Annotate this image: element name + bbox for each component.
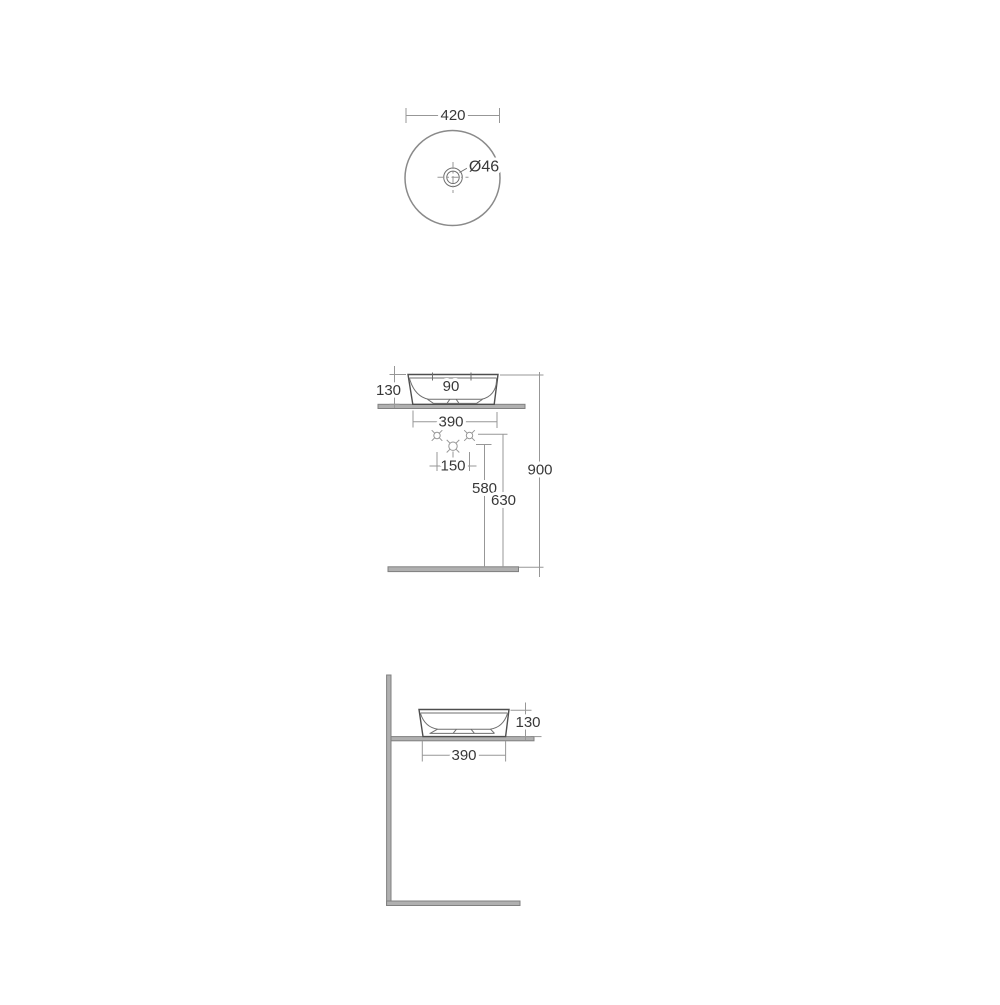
dim-label-basin-height-side: 130	[515, 714, 540, 731]
hole-cross-ticks	[432, 430, 443, 441]
dim-label-basin-height: 130	[376, 382, 401, 399]
dim-overall-width: 420	[406, 107, 500, 124]
hole-circle	[466, 432, 472, 438]
fixing-hole-marker-right	[464, 430, 475, 441]
dim-base-width-front: 390	[413, 411, 497, 431]
page: { "document": { "type": "washbasin-techn…	[0, 0, 1000, 1000]
dim-label-inner: 90	[443, 378, 460, 395]
dim-label-drain-diameter: Ø46	[469, 159, 499, 176]
fixing-hole-marker-left	[432, 430, 443, 441]
hole-circle	[449, 442, 457, 450]
dim-label-holes-height: 630	[491, 492, 516, 509]
dim-rim-height: 900	[500, 372, 553, 577]
dim-basin-height-front: 130	[376, 366, 406, 408]
dim-label-overall-width: 420	[440, 107, 465, 124]
front-view: 90 130 390	[376, 366, 553, 577]
dim-label-hole-spacing: 150	[440, 458, 465, 475]
dim-label-base-depth: 390	[451, 747, 476, 764]
drain-hole-icon	[438, 162, 469, 193]
dim-holes-height: 630	[478, 434, 516, 567]
dim-label-rim-height: 900	[527, 462, 552, 479]
floor-side	[387, 901, 520, 906]
dim-base-depth-side: 390	[422, 741, 505, 764]
wall-side	[387, 675, 391, 906]
hole-circle	[434, 432, 440, 438]
floor-front	[388, 567, 519, 572]
hole-cross-ticks	[464, 430, 475, 441]
dim-basin-height-side: 130	[511, 703, 541, 741]
washbasin-technical-drawing: 420 Ø46 90 130 390	[0, 0, 1000, 1000]
side-view: 130 390	[387, 675, 542, 906]
top-view: 420 Ø46	[405, 107, 500, 226]
drain-outlet-marker-center	[447, 440, 460, 453]
technical-drawing-page: 420 Ø46 90 130 390	[0, 0, 1000, 1000]
dim-label-base-width: 390	[438, 413, 463, 430]
